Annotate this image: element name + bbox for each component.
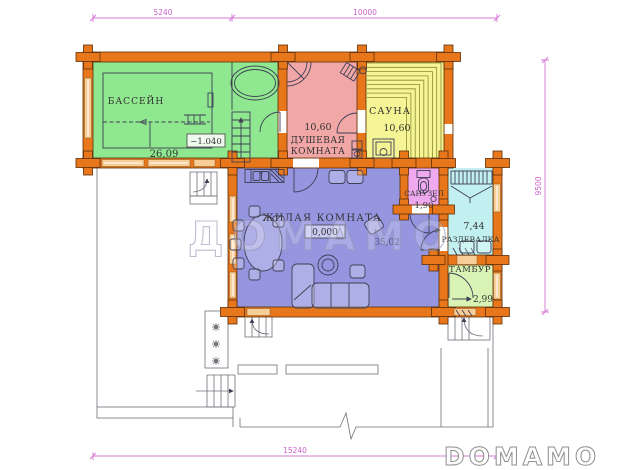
garden-steps xyxy=(196,375,235,407)
flower-icon xyxy=(212,323,220,365)
watermark-text: ДОМАМО xyxy=(188,214,456,260)
dressing-room-area: 7,44 xyxy=(463,221,484,232)
dim-top-right: 10000 xyxy=(353,8,377,17)
flower-bed xyxy=(205,311,228,368)
steps-below-living-room xyxy=(245,316,272,337)
brand-logo: DOMAMO xyxy=(444,442,600,470)
dim-top-left: 5240 xyxy=(153,8,172,17)
wc-fill xyxy=(408,168,439,205)
wc-area: 1,90 xyxy=(415,201,434,211)
vestibule-area: 2,99 xyxy=(473,295,493,305)
dim-bottom: 15240 xyxy=(283,446,307,455)
sauna-stove-icon xyxy=(373,139,394,158)
dim-right: 9500 xyxy=(534,176,543,195)
sauna-name: САУНА xyxy=(369,106,411,117)
pool-level: −1.040 xyxy=(190,137,221,147)
shower-room-area: 10,60 xyxy=(304,122,331,133)
terrace-stair-to-pool-wing xyxy=(190,172,217,204)
pool-room-area: 26,09 xyxy=(150,149,179,160)
wc-name: САНУЗЕЛ xyxy=(404,189,444,198)
floor-plan-canvas: 5240 10000 15240 9500 БАССЕЙН 26,09 −1.0… xyxy=(0,0,627,470)
shower-room-name-2: КОМНАТА xyxy=(291,147,346,157)
vestibule-name: ТАМБУР xyxy=(449,265,491,275)
sauna-area: 10,60 xyxy=(383,123,410,134)
pool-room-name: БАССЕЙН xyxy=(108,95,164,107)
shower-room-name-1: ДУШЕВАЯ xyxy=(291,136,346,146)
floor-plan-drawing: 5240 10000 15240 9500 БАССЕЙН 26,09 −1.0… xyxy=(0,0,627,470)
